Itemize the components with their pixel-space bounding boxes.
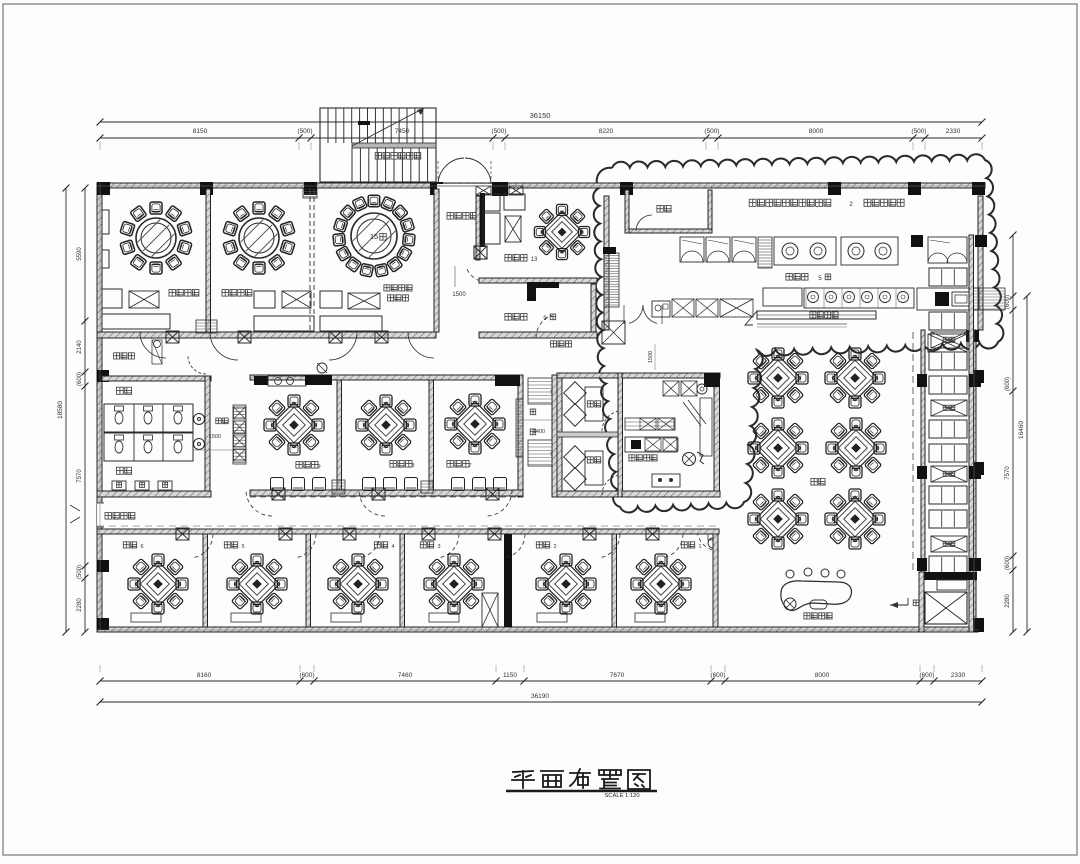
svg-text:18580: 18580: [57, 401, 64, 419]
svg-text:7: 7: [468, 463, 471, 469]
svg-text:2140: 2140: [77, 340, 83, 354]
svg-text:6: 6: [140, 544, 143, 550]
svg-text:8220: 8220: [599, 128, 614, 135]
svg-text:1500: 1500: [648, 351, 654, 363]
svg-text:1150: 1150: [503, 672, 517, 679]
svg-text:2330: 2330: [951, 672, 966, 679]
svg-text:SCALE 1:120: SCALE 1:120: [604, 793, 639, 799]
svg-text:(600): (600): [77, 372, 83, 386]
svg-text:(500): (500): [911, 128, 926, 135]
svg-text:8: 8: [411, 463, 414, 469]
svg-text:1: 1: [698, 544, 701, 550]
svg-text:5: 5: [241, 544, 244, 550]
svg-text:(600): (600): [299, 672, 314, 679]
svg-text:1500: 1500: [209, 434, 221, 440]
svg-text:(600): (600): [1005, 295, 1011, 309]
svg-text:8150: 8150: [193, 128, 208, 135]
svg-text:36150: 36150: [530, 111, 551, 120]
svg-text:↑: ↑: [549, 451, 553, 458]
svg-text:2330: 2330: [946, 128, 961, 135]
svg-text:2: 2: [849, 201, 853, 208]
svg-text:13: 13: [531, 257, 538, 263]
svg-text:7570: 7570: [1005, 466, 1011, 480]
svg-text:1400: 1400: [533, 429, 545, 435]
svg-text:↑: ↑: [549, 389, 553, 396]
svg-text:7670: 7670: [610, 672, 625, 679]
svg-text:8000: 8000: [809, 128, 824, 135]
svg-text:8000: 8000: [815, 672, 830, 679]
svg-text:1500: 1500: [452, 292, 466, 298]
svg-text:7570: 7570: [77, 469, 83, 483]
svg-text:7460: 7460: [398, 672, 413, 679]
svg-text:(600): (600): [1005, 377, 1011, 391]
svg-text:4: 4: [391, 544, 394, 550]
svg-text:9: 9: [317, 464, 320, 470]
svg-text:2280: 2280: [77, 598, 83, 612]
svg-text:(500): (500): [491, 128, 506, 135]
svg-text:5590: 5590: [77, 247, 83, 261]
svg-text:2: 2: [553, 544, 556, 550]
svg-text:2280: 2280: [1005, 594, 1011, 608]
svg-text:(600): (600): [710, 672, 725, 679]
svg-text:(600): (600): [1005, 556, 1011, 570]
svg-text:(500): (500): [77, 565, 83, 579]
svg-text:(500): (500): [297, 128, 312, 135]
svg-text:(600): (600): [919, 672, 934, 679]
svg-text:(500): (500): [704, 128, 719, 135]
svg-text:8160: 8160: [197, 672, 212, 679]
svg-text:15: 15: [370, 232, 378, 241]
svg-text:16460: 16460: [1018, 421, 1025, 439]
svg-text:3: 3: [437, 544, 440, 550]
svg-text:36190: 36190: [531, 693, 549, 700]
